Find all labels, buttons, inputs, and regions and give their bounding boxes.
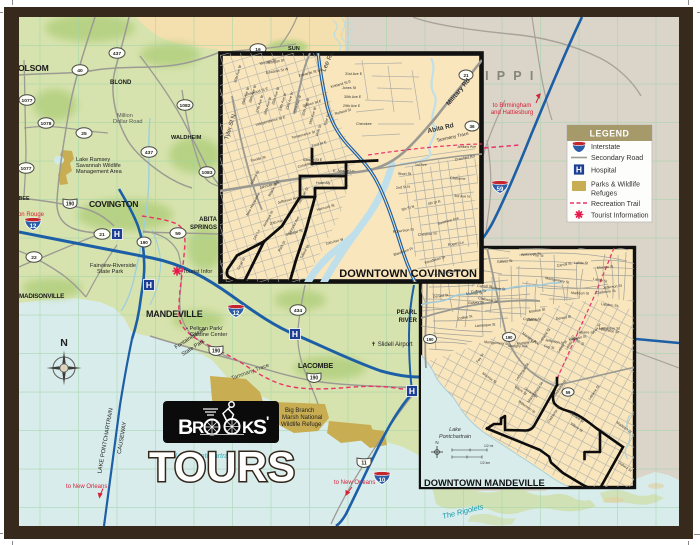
svg-text:H: H <box>292 329 298 339</box>
svg-text:and Hattiesburg: and Hattiesburg <box>491 110 533 116</box>
svg-text:21: 21 <box>99 232 105 238</box>
svg-text:12: 12 <box>233 311 240 317</box>
svg-text:SUN: SUN <box>288 46 300 52</box>
svg-text:N: N <box>435 440 438 445</box>
svg-text:12: 12 <box>30 224 37 230</box>
svg-text:LEGEND: LEGEND <box>590 129 630 139</box>
svg-text:LACOMBE: LACOMBE <box>298 361 333 370</box>
svg-text:TOURS: TOURS <box>149 443 296 490</box>
svg-text:30th Ave E: 30th Ave E <box>344 95 362 99</box>
svg-text:to New Orleans: to New Orleans <box>66 484 107 490</box>
svg-text:Jones St: Jones St <box>342 86 356 90</box>
svg-text:Cherokee: Cherokee <box>356 122 372 126</box>
svg-text:1/2 mi: 1/2 mi <box>484 444 493 448</box>
svg-text:1077: 1077 <box>21 166 32 172</box>
svg-text:Pontchartrain: Pontchartrain <box>439 434 471 440</box>
svg-text:Tourist Information: Tourist Information <box>591 213 649 220</box>
svg-text:40: 40 <box>77 68 83 74</box>
svg-text:Big Branch: Big Branch <box>285 408 314 414</box>
svg-text:ABITA: ABITA <box>199 217 218 223</box>
svg-text:Secondary Road: Secondary Road <box>591 155 643 162</box>
svg-text:Interstate: Interstate <box>591 144 620 151</box>
svg-text:Dollar Road: Dollar Road <box>113 119 143 125</box>
svg-text:N: N <box>60 337 68 349</box>
svg-text:Jenkins Ave: Jenkins Ave <box>457 145 476 149</box>
svg-text:H: H <box>576 165 582 175</box>
svg-text:Parks & Wildlife: Parks & Wildlife <box>591 182 640 189</box>
svg-text:to Birmingham: to Birmingham <box>493 103 532 109</box>
svg-text:MADISONVILLE: MADISONVILLE <box>19 293 64 300</box>
svg-text:Management Area: Management Area <box>76 169 123 175</box>
svg-text:Madison St: Madison St <box>571 291 589 296</box>
svg-text:59: 59 <box>175 231 181 237</box>
svg-text:434: 434 <box>294 308 302 314</box>
svg-text:H: H <box>146 280 152 290</box>
svg-text:190: 190 <box>310 375 319 381</box>
svg-text:Gibson St E: Gibson St E <box>303 158 323 162</box>
svg-text:COVINGTON: COVINGTON <box>89 199 138 209</box>
svg-text:Tourist Infor: Tourist Infor <box>183 269 212 275</box>
svg-text:36: 36 <box>469 124 475 129</box>
svg-text:190: 190 <box>427 337 435 342</box>
svg-text:Refuges: Refuges <box>591 191 618 198</box>
svg-text:PEARL: PEARL <box>397 310 418 316</box>
svg-text:State Park: State Park <box>97 269 123 275</box>
svg-text:Hotel Aly: Hotel Aly <box>316 181 330 185</box>
svg-text:SPRINGS: SPRINGS <box>190 225 217 231</box>
svg-text:Lake: Lake <box>449 427 461 433</box>
svg-text:S: S <box>253 416 267 439</box>
svg-text:WALDHEIM: WALDHEIM <box>171 135 202 141</box>
svg-text:DOWNTOWN COVINGTON: DOWNTOWN COVINGTON <box>339 268 477 280</box>
svg-text:1/2 km: 1/2 km <box>480 461 490 465</box>
svg-text:DOWNTOWN MANDEVILLE: DOWNTOWN MANDEVILLE <box>424 478 545 488</box>
svg-text:437: 437 <box>113 51 121 57</box>
svg-text:Lafitte St: Lafitte St <box>527 317 541 322</box>
svg-text:BLOND: BLOND <box>110 80 132 86</box>
svg-text:59: 59 <box>497 187 504 193</box>
svg-text:Hospital: Hospital <box>591 168 617 175</box>
svg-text:190: 190 <box>212 348 221 354</box>
svg-text:H: H <box>409 386 415 396</box>
svg-text:E. Abadie Ln: E. Abadie Ln <box>333 169 355 173</box>
svg-text:Wildlife Refuge: Wildlife Refuge <box>281 422 322 428</box>
svg-text:Galvez St: Galvez St <box>468 301 484 305</box>
svg-text:31st Ave E: 31st Ave E <box>345 72 363 76</box>
svg-text:MANDEVILLE: MANDEVILLE <box>146 309 203 319</box>
svg-text:10: 10 <box>379 478 386 484</box>
svg-text:59: 59 <box>566 390 571 395</box>
svg-text:3rd Ave N: 3rd Ave N <box>454 194 470 199</box>
svg-text:': ' <box>266 413 269 429</box>
svg-text:22: 22 <box>31 255 37 261</box>
svg-text:25: 25 <box>81 131 87 137</box>
svg-text:1082: 1082 <box>180 103 191 109</box>
svg-text:Marsh National: Marsh National <box>282 415 322 421</box>
svg-text:190: 190 <box>66 201 75 207</box>
svg-text:1083: 1083 <box>202 170 213 176</box>
svg-text:✝ Slidell Airport: ✝ Slidell Airport <box>371 341 413 348</box>
svg-text:H: H <box>114 229 120 239</box>
svg-text:1077: 1077 <box>22 98 33 104</box>
svg-text:1078: 1078 <box>41 121 52 127</box>
svg-text:190: 190 <box>140 240 148 245</box>
svg-text:Lafitte St: Lafitte St <box>574 261 588 265</box>
svg-text:437: 437 <box>145 150 153 156</box>
svg-text:to New Orleans: to New Orleans <box>334 480 375 486</box>
svg-text:B: B <box>178 416 193 439</box>
svg-text:RIVER: RIVER <box>399 318 418 324</box>
svg-text:11: 11 <box>361 460 367 466</box>
svg-text:Marigny Ave: Marigny Ave <box>508 344 528 348</box>
svg-text:Recreation Trail: Recreation Trail <box>591 201 640 208</box>
svg-text:Short St: Short St <box>398 172 411 176</box>
svg-text:29th Ave E: 29th Ave E <box>343 104 361 108</box>
svg-text:1st Ave: 1st Ave <box>415 163 427 167</box>
svg-text:190: 190 <box>506 335 514 340</box>
